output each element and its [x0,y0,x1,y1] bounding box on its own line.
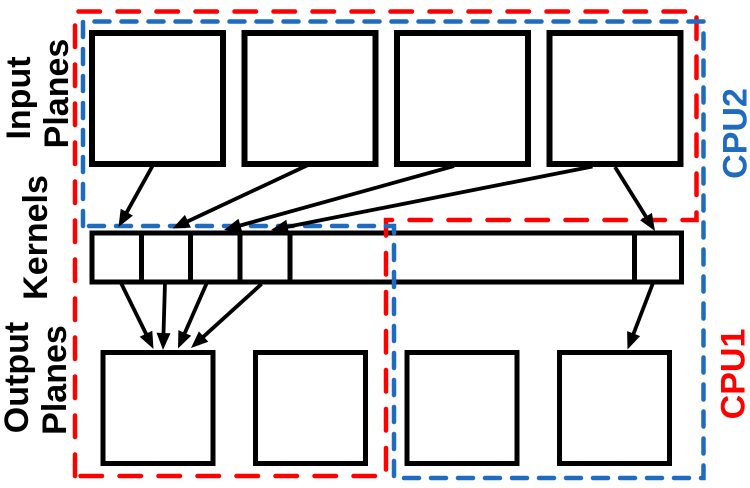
svg-text:Kernels: Kernels [17,175,55,300]
svg-text:OutputPlanes: OutputPlanes [0,322,74,435]
svg-text:CPU2: CPU2 [717,88,750,179]
svg-text:CPU1: CPU1 [715,329,750,420]
